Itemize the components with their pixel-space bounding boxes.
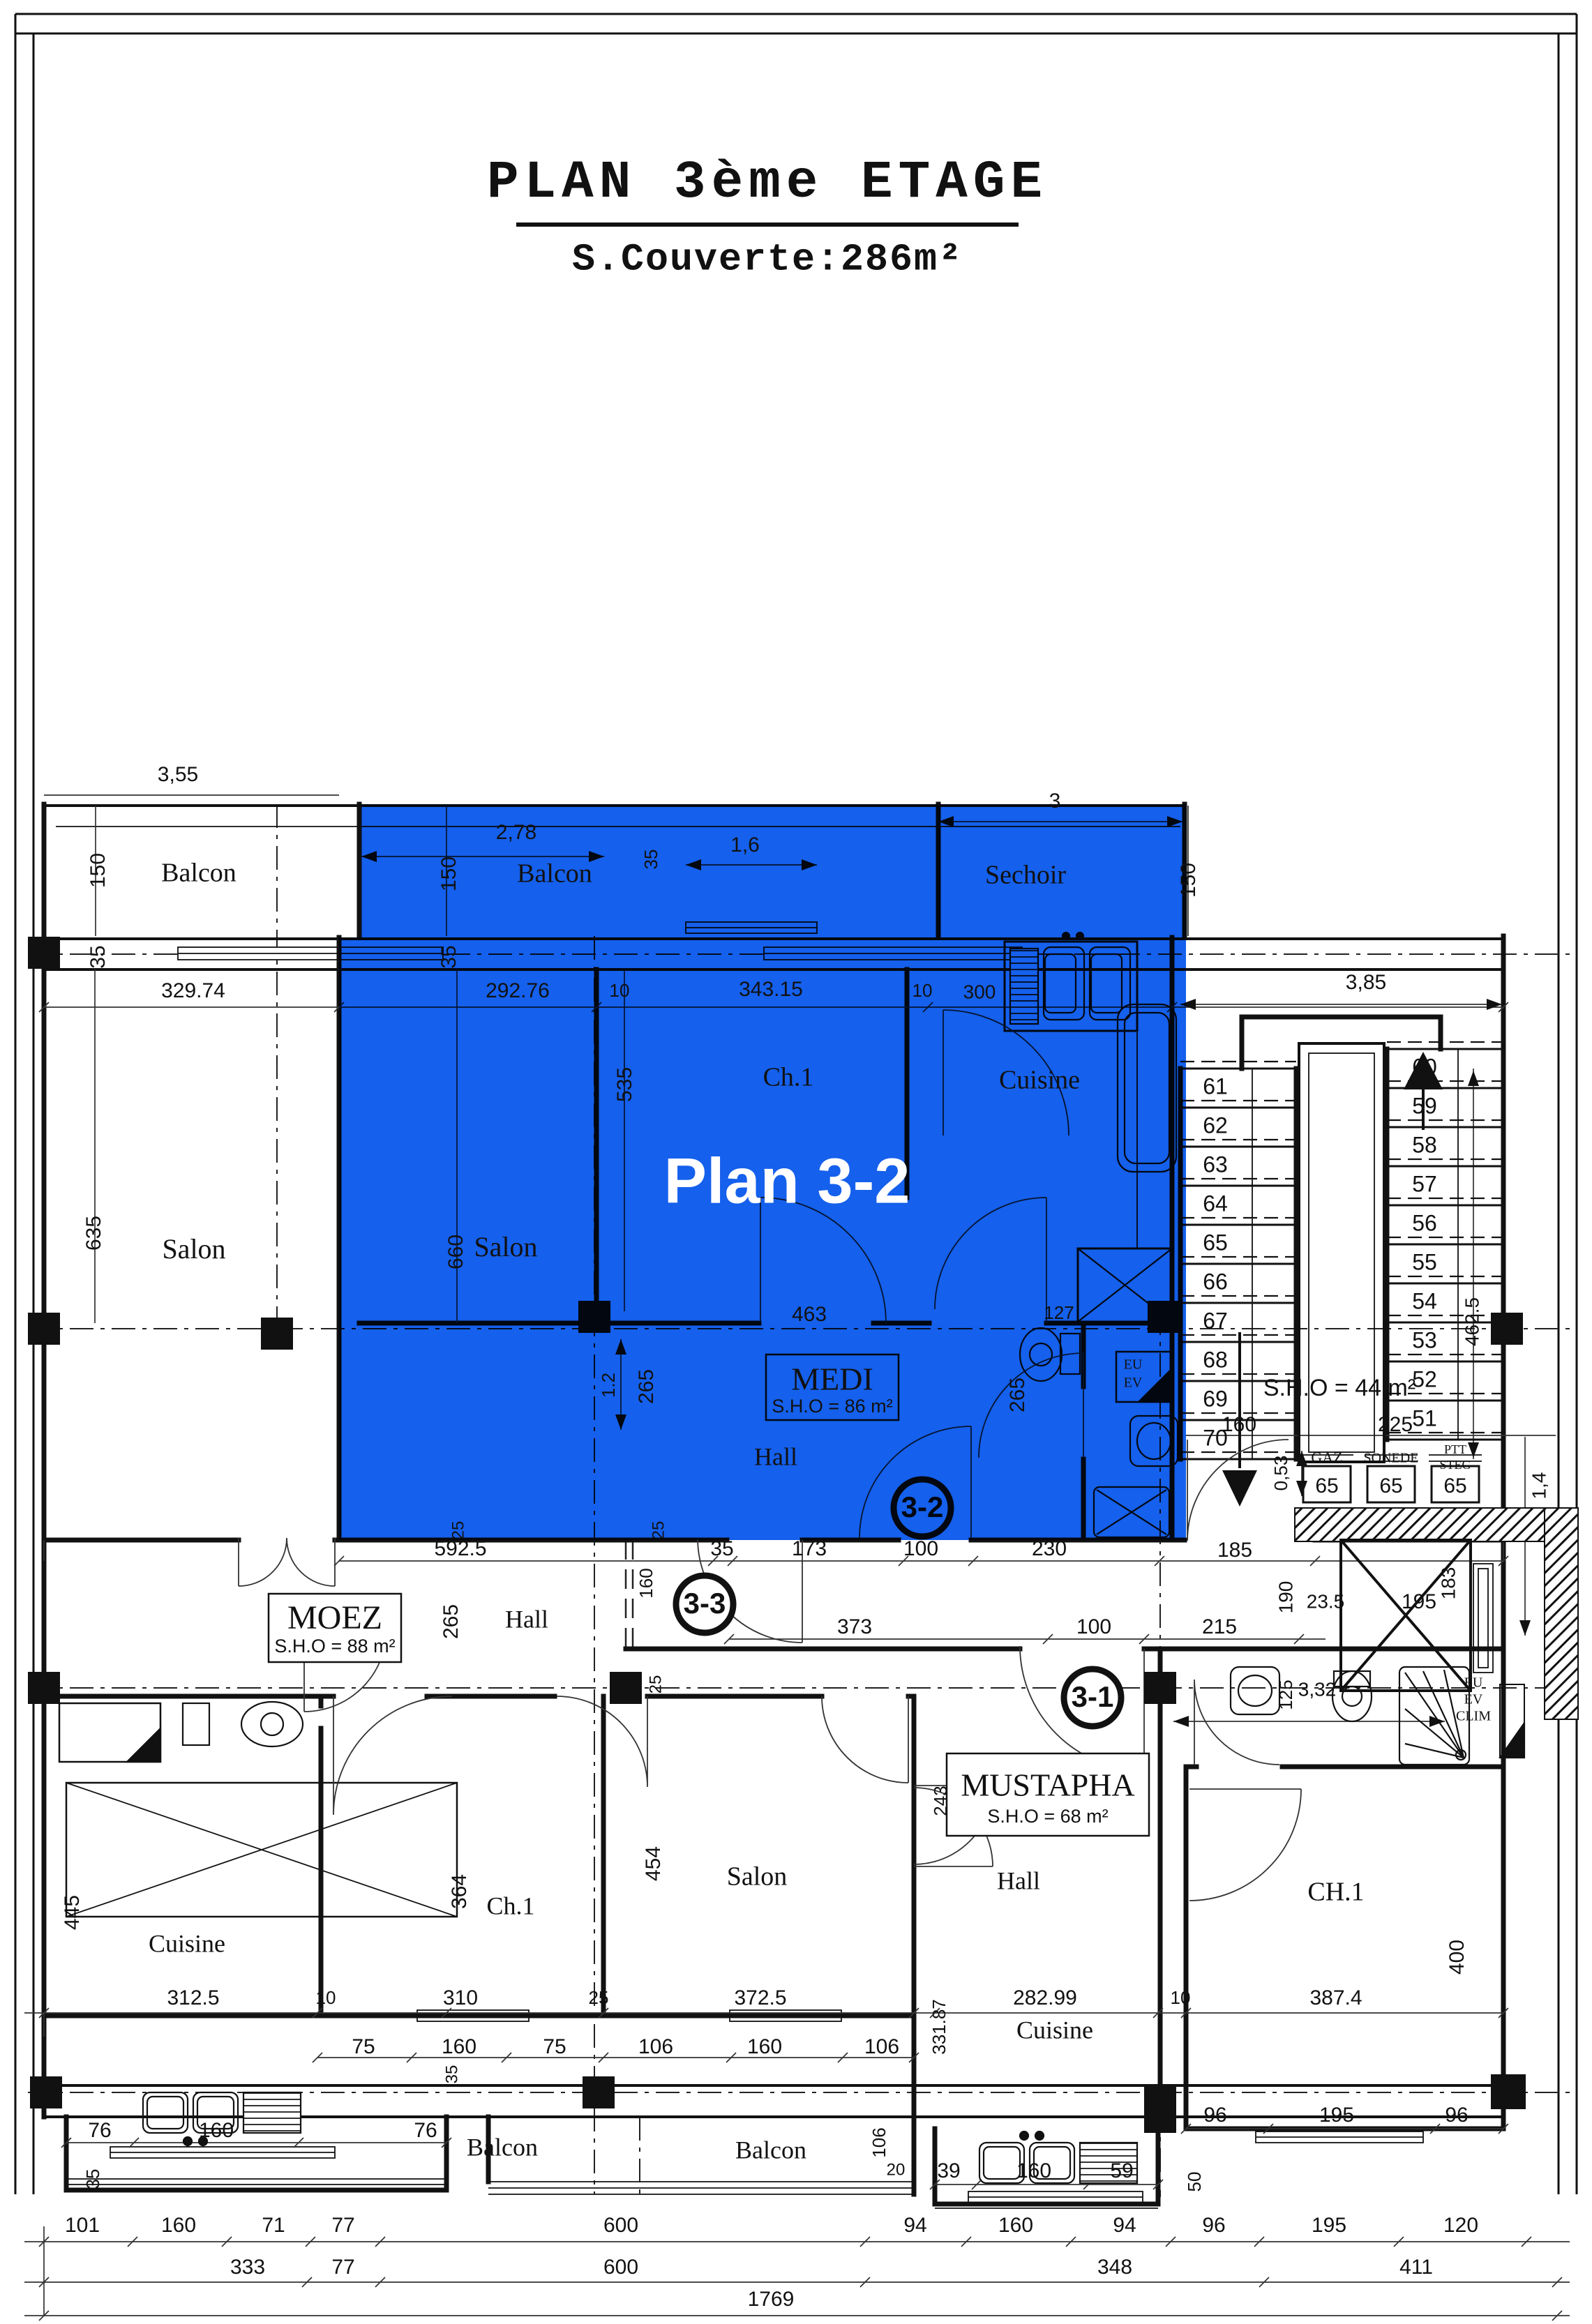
dim: 25 xyxy=(589,1987,609,2008)
dim: 372.5 xyxy=(734,1986,786,2009)
dim: 300 xyxy=(963,981,996,1002)
dim: 243 xyxy=(930,1786,951,1816)
stair-step-number: 55 xyxy=(1412,1249,1437,1274)
dim: 35 xyxy=(710,1537,733,1560)
dim: 2,78 xyxy=(496,821,536,844)
dim: 100 xyxy=(1076,1615,1111,1638)
apt-mustapha-area: S.H.O = 68 m² xyxy=(987,1806,1108,1827)
dim: 265 xyxy=(440,1604,463,1639)
dim: 173 xyxy=(792,1537,827,1560)
stair-step-number: 51 xyxy=(1412,1405,1437,1431)
room-balcon-bottom: Balcon xyxy=(467,2133,538,2161)
dim: 71 xyxy=(262,2214,285,2237)
dim: 1769 xyxy=(748,2288,795,2311)
dim: 23.5 xyxy=(1307,1590,1345,1612)
closet-steg: STEG xyxy=(1440,1458,1471,1472)
dim: 39 xyxy=(937,2159,960,2182)
dim: 76 xyxy=(414,2119,437,2142)
floor-plan-sheet: PLAN 3ème ETAGE S.Couverte:286m² xyxy=(0,0,1592,2324)
dim: 35 xyxy=(442,2065,461,2084)
room-cuisine-right: Cuisine xyxy=(1016,2016,1093,2044)
dim: 195 xyxy=(1402,1590,1436,1613)
dim: 333 xyxy=(230,2256,265,2279)
dim: 160 xyxy=(998,2214,1033,2237)
stair-step-number: 61 xyxy=(1203,1073,1228,1099)
dim: 3,32 xyxy=(1298,1678,1337,1700)
dim: 20 xyxy=(887,2160,906,2179)
stair-step-number: 65 xyxy=(1203,1230,1228,1255)
dim: 1,4 xyxy=(1528,1472,1549,1500)
dim: 329.74 xyxy=(161,979,225,1002)
dim: 660 xyxy=(444,1235,467,1269)
dim: 160 xyxy=(161,2214,196,2237)
room-salon: Salon xyxy=(162,1233,225,1265)
room-hall-mustapha: Hall xyxy=(997,1866,1040,1894)
dim: 183 xyxy=(1437,1567,1459,1600)
dim: 101 xyxy=(65,2214,100,2237)
dim: 150 xyxy=(437,857,460,891)
dim: 0,53 xyxy=(1270,1456,1291,1491)
room-cuisine-left: Cuisine xyxy=(149,1929,225,1957)
dim: 535 xyxy=(613,1067,636,1102)
stair-step-number: 66 xyxy=(1203,1269,1228,1294)
dim: 1.2 xyxy=(598,1373,619,1398)
dim: 160 xyxy=(636,1568,656,1598)
room-hall-moez: Hall xyxy=(505,1605,548,1633)
duct: EU xyxy=(1124,1357,1143,1373)
dim: 35 xyxy=(87,945,110,968)
closet-gaz: GAZ xyxy=(1311,1449,1342,1466)
dim: 160 xyxy=(747,2035,782,2058)
dim: 445 xyxy=(61,1895,84,1930)
room-sechoir: Sechoir xyxy=(985,861,1066,890)
dim: 96 xyxy=(1445,2104,1468,2127)
dim: 411 xyxy=(1399,2256,1433,2279)
dim: 75 xyxy=(352,2035,375,2058)
marker-label-3-1: 3-1 xyxy=(1072,1680,1114,1713)
dim: 25 xyxy=(449,1521,467,1540)
dim: 1,6 xyxy=(730,833,760,857)
stair-step-number: 69 xyxy=(1203,1386,1228,1411)
apt-moez: MOEZ xyxy=(287,1599,382,1636)
closet-sonede: SONEDE xyxy=(1364,1451,1419,1466)
dim: 343.15 xyxy=(739,978,803,1001)
dim: 150 xyxy=(87,853,110,888)
dim: 94 xyxy=(1113,2214,1136,2237)
dim: 160 xyxy=(199,2119,234,2142)
dim: 10 xyxy=(316,1987,336,2008)
dim: 292.76 xyxy=(486,979,550,1002)
dim: 387.4 xyxy=(1309,1986,1362,2009)
room-balcon: Balcon xyxy=(161,859,236,888)
dim: 96 xyxy=(1203,2104,1226,2127)
dim: 3,85 xyxy=(1346,971,1386,994)
plan-title: PLAN 3ème ETAGE xyxy=(487,153,1048,213)
overhead-dashed xyxy=(626,1540,633,1649)
dim: 600 xyxy=(603,2214,638,2237)
dim: 125 xyxy=(1275,1680,1296,1710)
dim: 310 xyxy=(443,1986,478,2009)
stair-step-number: 68 xyxy=(1203,1347,1228,1372)
stair-step-number: 56 xyxy=(1412,1210,1437,1235)
dim: 160 xyxy=(1016,2159,1051,2182)
dim: 65 xyxy=(1315,1474,1338,1497)
dim: 75 xyxy=(543,2035,566,2058)
stair-step-number: 52 xyxy=(1412,1366,1437,1391)
stair-step-number: 70 xyxy=(1203,1425,1228,1450)
dim: 600 xyxy=(603,2256,638,2279)
dim: 364 xyxy=(448,1874,471,1909)
dim: 225 xyxy=(1378,1413,1413,1436)
room-ch1-right: CH.1 xyxy=(1307,1878,1364,1907)
dim: 195 xyxy=(1312,2214,1346,2237)
dim: 127 xyxy=(1044,1302,1074,1323)
dim: 463 xyxy=(792,1303,827,1326)
dim: 100 xyxy=(903,1537,938,1560)
apt-medi: MEDI xyxy=(791,1361,873,1397)
dim: 312.5 xyxy=(167,1986,219,2009)
dim: 400 xyxy=(1445,1940,1469,1975)
stair-step-number: 63 xyxy=(1203,1152,1228,1177)
dim: 348 xyxy=(1097,2256,1132,2279)
stair-step-number: 60 xyxy=(1412,1054,1437,1079)
stair-step-number: 62 xyxy=(1203,1112,1228,1138)
dim: 106 xyxy=(864,2035,899,2058)
dim: 94 xyxy=(903,2214,926,2237)
dim: 282.99 xyxy=(1013,1986,1077,2009)
dim: 635 xyxy=(82,1216,105,1251)
duct: CLIM xyxy=(1456,1709,1491,1724)
room-salon-bottom: Salon xyxy=(727,1862,788,1892)
dim: 35 xyxy=(82,2169,103,2189)
dim: 106 xyxy=(869,2127,889,2157)
dim: 10 xyxy=(610,980,630,1001)
dim: 77 xyxy=(331,2214,354,2237)
stair-step-number: 53 xyxy=(1412,1327,1437,1352)
dim: 3 xyxy=(1049,790,1061,813)
dim: 190 xyxy=(1275,1581,1296,1614)
floor-plan-drawing: PLAN 3ème ETAGE S.Couverte:286m² xyxy=(0,0,1592,2324)
dim: 10 xyxy=(913,980,933,1001)
dim: 195 xyxy=(1319,2104,1354,2127)
highlight-label: Plan 3-2 xyxy=(664,1145,910,1216)
dim: 77 xyxy=(331,2256,354,2279)
stairhall-area: S.H.O = 44 m² xyxy=(1263,1375,1415,1401)
dim: 35 xyxy=(437,945,460,968)
dim: 215 xyxy=(1202,1615,1237,1638)
dim: 150 xyxy=(1177,863,1200,898)
dim: 50 xyxy=(1184,2172,1205,2192)
stair-step-number: 64 xyxy=(1203,1191,1228,1216)
dim: 59 xyxy=(1110,2159,1133,2182)
dim: 230 xyxy=(1032,1537,1067,1560)
dim: 120 xyxy=(1443,2214,1478,2237)
dim: 265 xyxy=(635,1369,658,1404)
dim: 185 xyxy=(1217,1539,1252,1562)
room-balcon: Balcon xyxy=(517,859,592,889)
dim: 454 xyxy=(642,1846,665,1881)
dim: 35 xyxy=(640,850,661,870)
dim: 25 xyxy=(646,1675,665,1694)
room-hall-medi: Hall xyxy=(754,1442,797,1470)
room-ch1-blue: Ch.1 xyxy=(763,1063,814,1092)
apt-medi-area: S.H.O = 86 m² xyxy=(772,1396,892,1417)
stair-step-number: 59 xyxy=(1412,1093,1437,1118)
apt-mustapha: MUSTAPHA xyxy=(961,1767,1134,1803)
dim: 76 xyxy=(88,2119,111,2142)
stair-step-number: 57 xyxy=(1412,1171,1437,1196)
dim: 373 xyxy=(837,1615,872,1638)
dim: 592.5 xyxy=(434,1537,486,1560)
dim: 96 xyxy=(1202,2214,1225,2237)
dim: 10 xyxy=(1171,1987,1191,2008)
room-ch1-left: Ch.1 xyxy=(486,1892,534,1919)
stair-step-number: 54 xyxy=(1412,1288,1437,1313)
room-salon-blue: Salon xyxy=(474,1231,537,1262)
dim: 160 xyxy=(442,2035,476,2058)
dim: 265 xyxy=(1006,1378,1029,1412)
dim: 65 xyxy=(1443,1474,1466,1497)
marker-label-3-3: 3-3 xyxy=(684,1587,726,1620)
dim: 331.87 xyxy=(929,1999,949,2055)
dim: 65 xyxy=(1379,1474,1402,1497)
room-balcon-bottom: Balcon xyxy=(735,2136,806,2164)
stair-step-number: 58 xyxy=(1412,1132,1437,1157)
duct: EU xyxy=(1464,1675,1483,1691)
dim: 25 xyxy=(649,1521,668,1540)
duct: EV xyxy=(1464,1692,1483,1707)
stair-step-number: 67 xyxy=(1203,1308,1228,1333)
plan-subtitle: S.Couverte:286m² xyxy=(572,238,963,282)
dim: 462.5 xyxy=(1461,1297,1482,1346)
dim: 106 xyxy=(638,2035,673,2058)
closet-ptt: PTT xyxy=(1444,1442,1466,1456)
duct: EV xyxy=(1124,1375,1143,1391)
dim: 3,55 xyxy=(158,763,198,786)
apt-moez-area: S.H.O = 88 m² xyxy=(274,1636,395,1657)
room-cuisine-blue: Cuisine xyxy=(999,1066,1080,1095)
